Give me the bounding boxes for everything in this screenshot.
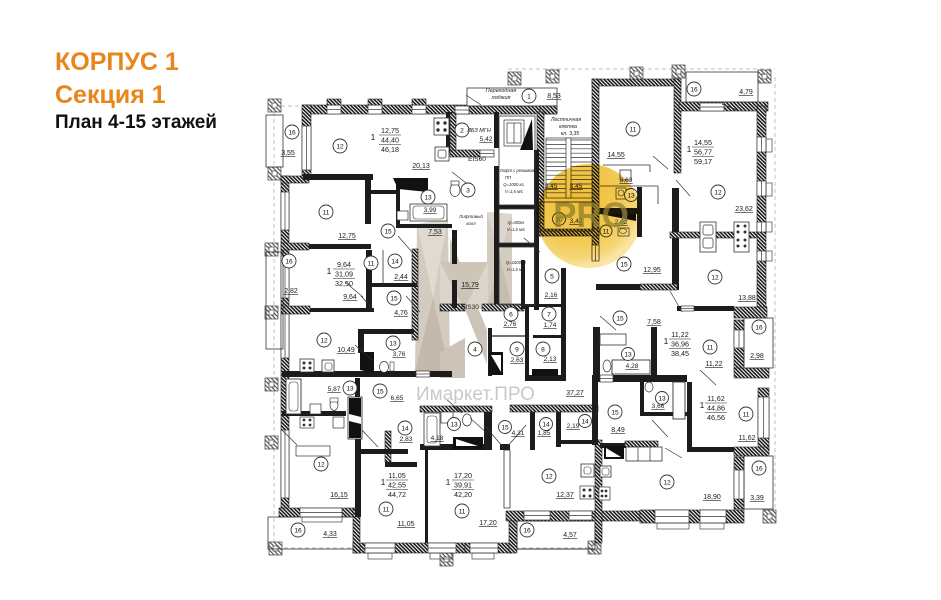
svg-text:Лестничная: Лестничная (550, 117, 581, 123)
svg-text:4,28: 4,28 (626, 363, 639, 370)
svg-text:2: 2 (460, 127, 464, 134)
svg-text:46,56: 46,56 (707, 413, 725, 422)
svg-text:18,90: 18,90 (703, 494, 721, 501)
svg-text:Переходная: Переходная (486, 88, 517, 94)
svg-text:13: 13 (450, 421, 458, 428)
svg-text:12: 12 (545, 473, 553, 480)
svg-text:16: 16 (294, 527, 302, 534)
svg-text:4,18: 4,18 (431, 435, 444, 442)
svg-text:4,76: 4,76 (394, 310, 408, 317)
svg-text:7: 7 (547, 311, 551, 318)
svg-text:11,22: 11,22 (706, 361, 723, 368)
svg-text:14,55: 14,55 (694, 138, 712, 147)
svg-text:4,31: 4,31 (512, 430, 525, 437)
svg-text:5: 5 (550, 273, 554, 280)
svg-text:9,64: 9,64 (337, 260, 351, 269)
svg-text:1: 1 (371, 132, 376, 142)
svg-text:кл. 3,35: кл. 3,35 (561, 131, 579, 137)
svg-text:38,45: 38,45 (671, 349, 689, 358)
svg-text:2,19: 2,19 (567, 423, 580, 430)
svg-text:12,75: 12,75 (381, 126, 399, 135)
svg-text:2,76: 2,76 (504, 321, 517, 328)
svg-text:холл: холл (465, 221, 476, 226)
svg-text:4,57: 4,57 (563, 532, 577, 539)
svg-text:5,87: 5,87 (328, 386, 341, 393)
svg-text:9,64: 9,64 (343, 294, 357, 301)
svg-text:2,83: 2,83 (400, 436, 413, 443)
svg-text:4: 4 (473, 346, 477, 353)
svg-text:Q=400кг: Q=400кг (508, 220, 525, 225)
svg-text:3,99: 3,99 (424, 207, 437, 214)
svg-text:Имаркет.ПРО: Имаркет.ПРО (416, 384, 535, 405)
svg-text:2,44: 2,44 (394, 274, 408, 281)
svg-text:44,40: 44,40 (381, 136, 399, 145)
svg-text:14: 14 (401, 425, 409, 432)
svg-text:11,05: 11,05 (388, 471, 405, 480)
svg-text:3,55: 3,55 (281, 150, 295, 157)
svg-text:2,98: 2,98 (750, 353, 764, 360)
svg-text:20,13: 20,13 (412, 163, 430, 170)
svg-text:1: 1 (700, 400, 705, 410)
svg-text:5,42: 5,42 (480, 136, 493, 143)
svg-text:1: 1 (527, 93, 531, 100)
svg-text:12: 12 (320, 337, 328, 344)
svg-text:15: 15 (616, 315, 624, 322)
svg-text:V=1,6 м/с: V=1,6 м/с (505, 189, 524, 194)
svg-text:11,05: 11,05 (398, 521, 415, 528)
svg-text:1,85: 1,85 (538, 430, 551, 437)
svg-text:ПП: ПП (505, 175, 512, 180)
svg-text:14: 14 (581, 418, 589, 425)
svg-text:11: 11 (323, 209, 330, 216)
svg-text:13: 13 (389, 340, 397, 347)
svg-text:Лифт с режимом: Лифт с режимом (499, 168, 535, 173)
svg-text:14,55: 14,55 (607, 152, 625, 159)
svg-text:15: 15 (611, 409, 619, 416)
svg-text:16,15: 16,15 (330, 492, 348, 499)
svg-text:42,20: 42,20 (454, 490, 472, 499)
svg-text:59,17: 59,17 (694, 157, 712, 166)
svg-text:12: 12 (317, 461, 325, 468)
svg-text:11: 11 (383, 506, 390, 513)
svg-text:23,62: 23,62 (735, 206, 753, 213)
svg-text:56,77: 56,77 (694, 148, 712, 157)
svg-text:4,79: 4,79 (739, 89, 753, 96)
svg-text:13: 13 (424, 194, 432, 201)
svg-text:36,96: 36,96 (671, 340, 689, 349)
svg-text:12,37: 12,37 (556, 492, 574, 499)
svg-text:44,86: 44,86 (707, 404, 725, 413)
svg-text:44,72: 44,72 (388, 490, 406, 499)
svg-text:16: 16 (288, 129, 296, 136)
svg-text:8: 8 (541, 346, 545, 353)
svg-text:42,55: 42,55 (388, 481, 406, 490)
svg-text:37,27: 37,27 (566, 390, 584, 397)
svg-text:13: 13 (624, 351, 632, 358)
svg-text:31,09: 31,09 (335, 270, 353, 279)
svg-text:15,79: 15,79 (461, 282, 479, 289)
svg-text:11: 11 (630, 126, 637, 133)
svg-text:15: 15 (620, 261, 628, 268)
svg-text:3,66: 3,66 (652, 403, 665, 410)
svg-text:V=1,6 м/с: V=1,6 м/с (507, 267, 526, 272)
svg-text:32,50: 32,50 (335, 279, 353, 288)
svg-text:12: 12 (711, 274, 719, 281)
svg-text:11: 11 (743, 411, 750, 418)
svg-text:15: 15 (501, 424, 509, 431)
svg-text:Q=1000 кг: Q=1000 кг (506, 260, 526, 265)
svg-text:16: 16 (523, 527, 531, 534)
svg-text:Q=1000 кг,: Q=1000 кг, (503, 182, 524, 187)
svg-text:3: 3 (466, 187, 470, 194)
svg-text:11: 11 (368, 260, 375, 267)
svg-text:13,88: 13,88 (738, 295, 756, 302)
svg-text:1: 1 (687, 144, 692, 154)
svg-text:14: 14 (391, 258, 399, 265)
svg-text:12,95: 12,95 (643, 267, 661, 274)
svg-text:2,63: 2,63 (511, 357, 524, 364)
svg-text:2,16: 2,16 (545, 292, 558, 299)
svg-text:16: 16 (755, 324, 763, 331)
svg-text:14: 14 (542, 421, 550, 428)
svg-text:39,91: 39,91 (454, 481, 472, 490)
svg-text:12: 12 (336, 143, 344, 150)
svg-text:ЕIS60: ЕIS60 (468, 156, 486, 163)
svg-text:11: 11 (707, 344, 714, 351)
svg-text:16: 16 (285, 258, 293, 265)
svg-text:V=1,6 м/с: V=1,6 м/с (507, 227, 526, 232)
svg-text:13: 13 (346, 385, 354, 392)
svg-text:8,53: 8,53 (547, 93, 561, 100)
svg-text:10,49: 10,49 (337, 347, 355, 354)
svg-text:1: 1 (446, 477, 451, 487)
svg-text:3,76: 3,76 (393, 351, 406, 358)
svg-text:16: 16 (690, 86, 698, 93)
svg-text:ЕIS30: ЕIS30 (461, 304, 479, 311)
svg-text:4,33: 4,33 (323, 531, 337, 538)
svg-text:46,18: 46,18 (381, 145, 399, 154)
svg-text:7,53: 7,53 (428, 229, 442, 236)
svg-text:1,74: 1,74 (544, 322, 557, 329)
svg-text:2,13: 2,13 (544, 356, 557, 363)
svg-text:15: 15 (390, 295, 398, 302)
svg-text:11,62: 11,62 (707, 394, 724, 403)
svg-text:лоджия: лоджия (491, 95, 511, 101)
svg-text:1: 1 (664, 336, 669, 346)
svg-text:3,39: 3,39 (750, 495, 764, 502)
svg-text:11: 11 (459, 508, 466, 515)
svg-text:15: 15 (376, 388, 384, 395)
svg-text:8,49: 8,49 (611, 427, 625, 434)
svg-text:12: 12 (663, 479, 671, 486)
svg-text:1: 1 (381, 477, 386, 487)
svg-text:6,65: 6,65 (391, 395, 404, 402)
svg-text:17,20: 17,20 (454, 471, 472, 480)
svg-text:клетка: клетка (559, 124, 577, 130)
svg-text:16: 16 (755, 465, 763, 472)
svg-text:ЛБЗ МГН: ЛБЗ МГН (466, 128, 491, 134)
svg-text:2,82: 2,82 (284, 288, 298, 295)
svg-text:Лифтовый: Лифтовый (458, 213, 483, 219)
svg-text:13: 13 (658, 395, 666, 402)
svg-text:6: 6 (509, 311, 513, 318)
svg-text:12: 12 (714, 189, 722, 196)
svg-text:17,20: 17,20 (479, 520, 497, 527)
svg-text:15: 15 (384, 228, 392, 235)
svg-text:12,75: 12,75 (338, 233, 356, 240)
svg-text:7,58: 7,58 (647, 319, 661, 326)
svg-text:11,62: 11,62 (739, 435, 756, 442)
svg-text:11,22: 11,22 (671, 330, 688, 339)
svg-text:1: 1 (327, 266, 332, 276)
svg-text:9: 9 (515, 346, 519, 353)
